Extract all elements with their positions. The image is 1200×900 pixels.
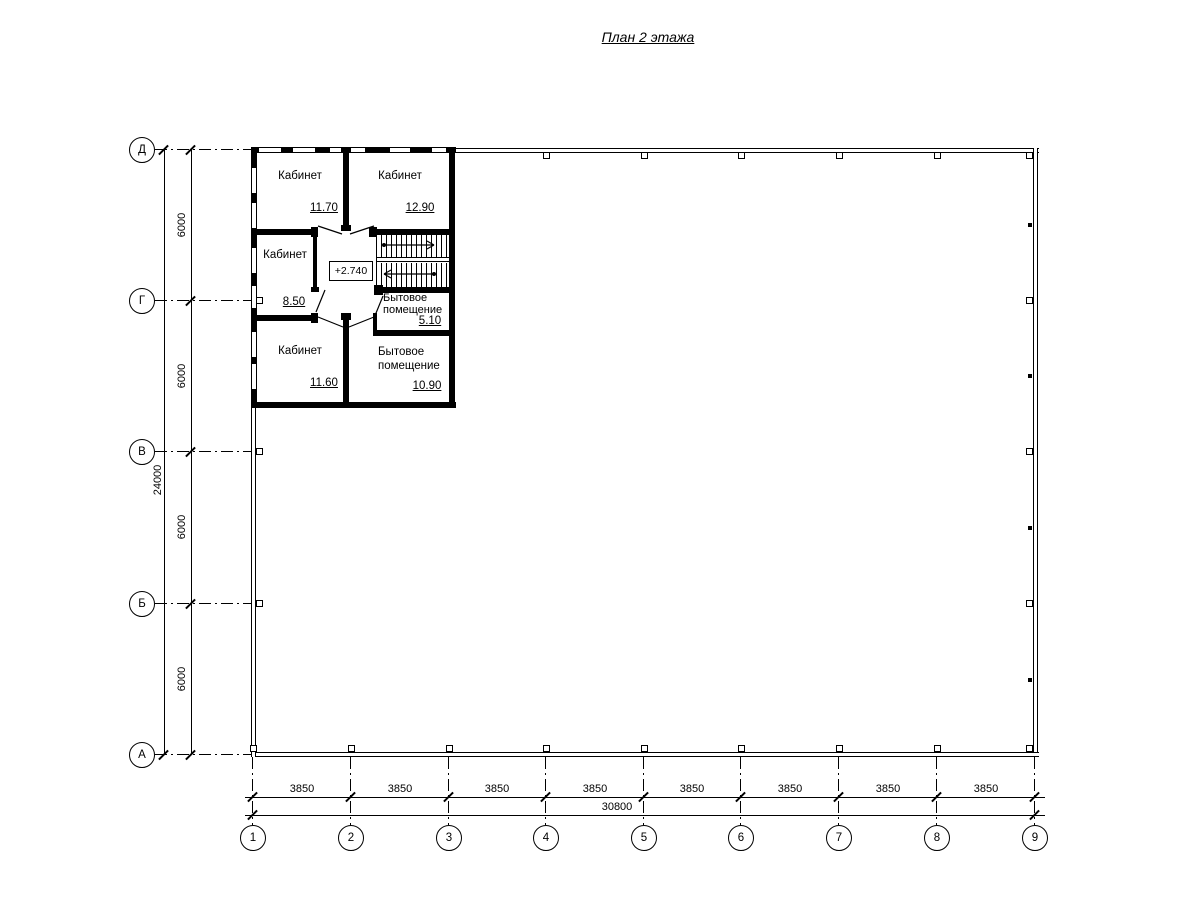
column-mark bbox=[641, 152, 648, 159]
door-leaf bbox=[318, 317, 343, 327]
room-name: Кабинет bbox=[378, 170, 422, 182]
column-mark-small bbox=[1028, 223, 1032, 227]
room-name: Бытовое помещение bbox=[383, 292, 449, 316]
column-mark bbox=[1026, 600, 1033, 607]
grid-bubble-label: Д bbox=[138, 144, 146, 156]
stair-arrow-start-dot bbox=[432, 272, 436, 276]
column-mark bbox=[256, 600, 263, 607]
grid-bubble-label: А bbox=[138, 749, 146, 761]
dim-line-horizontal-segments bbox=[245, 797, 1045, 798]
grid-bubble-row-a: А bbox=[129, 742, 155, 768]
door-leaf bbox=[316, 290, 325, 312]
dim-value-total: 30800 bbox=[577, 801, 657, 813]
room-area: 12.90 bbox=[406, 202, 435, 214]
column-mark-small bbox=[1028, 526, 1032, 530]
column-mark bbox=[1026, 448, 1033, 455]
dim-value: 6000 bbox=[176, 205, 188, 245]
grid-bubble-col-3: 3 bbox=[436, 825, 462, 851]
column-mark bbox=[348, 745, 355, 752]
grid-bubble-col-4: 4 bbox=[533, 825, 559, 851]
column-mark bbox=[934, 152, 941, 159]
grid-bubble-label: 1 bbox=[250, 832, 256, 844]
column-mark bbox=[738, 152, 745, 159]
dim-line-horizontal-total bbox=[245, 815, 1045, 816]
grid-bubble-label: 3 bbox=[446, 832, 452, 844]
column-mark bbox=[1026, 297, 1033, 304]
grid-bubble-label: 7 bbox=[836, 832, 842, 844]
grid-bubble-row-d: Д bbox=[129, 137, 155, 163]
grid-bubble-col-9: 9 bbox=[1022, 825, 1048, 851]
room-name: Бытовое помещение bbox=[378, 345, 450, 373]
dim-value: 3850 bbox=[662, 783, 722, 795]
grid-bubble-label: 5 bbox=[641, 832, 647, 844]
column-mark bbox=[543, 152, 550, 159]
column-mark bbox=[836, 152, 843, 159]
grid-bubble-label: 8 bbox=[934, 832, 940, 844]
door-leaf bbox=[349, 317, 374, 327]
dim-value: 6000 bbox=[176, 356, 188, 396]
grid-bubble-col-7: 7 bbox=[826, 825, 852, 851]
column-mark bbox=[256, 297, 263, 304]
dim-value: 3850 bbox=[272, 783, 332, 795]
grid-bubble-row-v: В bbox=[129, 439, 155, 465]
room-area: 10.90 bbox=[413, 380, 442, 392]
dim-line-vertical-total bbox=[164, 150, 165, 755]
dim-value: 3850 bbox=[370, 783, 430, 795]
room-area: 8.50 bbox=[283, 296, 305, 308]
doors-and-stair-arrows-overlay bbox=[0, 0, 1200, 900]
dim-value: 3850 bbox=[858, 783, 918, 795]
dim-value: 6000 bbox=[176, 659, 188, 699]
door-leaf bbox=[374, 296, 383, 318]
grid-bubble-label: 9 bbox=[1032, 832, 1038, 844]
column-mark bbox=[738, 745, 745, 752]
grid-bubble-col-5: 5 bbox=[631, 825, 657, 851]
grid-bubble-label: В bbox=[138, 446, 146, 458]
column-mark bbox=[446, 745, 453, 752]
column-mark bbox=[641, 745, 648, 752]
column-mark bbox=[836, 745, 843, 752]
grid-bubble-col-2: 2 bbox=[338, 825, 364, 851]
dim-value: 3850 bbox=[467, 783, 527, 795]
grid-bubble-row-b: Б bbox=[129, 591, 155, 617]
column-mark-small bbox=[1028, 678, 1032, 682]
grid-bubble-label: 6 bbox=[738, 832, 744, 844]
column-mark bbox=[1026, 152, 1033, 159]
column-mark bbox=[1026, 745, 1033, 752]
room-name: Кабинет bbox=[278, 170, 322, 182]
column-mark bbox=[256, 448, 263, 455]
column-mark-small bbox=[1028, 374, 1032, 378]
grid-bubble-col-8: 8 bbox=[924, 825, 950, 851]
door-leaf bbox=[318, 226, 342, 234]
dim-value-total: 24000 bbox=[152, 455, 164, 505]
grid-bubble-row-g: Г bbox=[129, 288, 155, 314]
grid-bubble-label: Г bbox=[139, 295, 145, 307]
room-name: Кабинет bbox=[278, 345, 322, 357]
room-name: Кабинет bbox=[263, 249, 307, 261]
grid-bubble-label: 2 bbox=[348, 832, 354, 844]
grid-bubble-label: Б bbox=[138, 598, 146, 610]
floor-plan-canvas: План 2 этажа bbox=[0, 0, 1200, 900]
room-area: 5.10 bbox=[419, 315, 441, 327]
dim-value: 3850 bbox=[565, 783, 625, 795]
dim-value: 3850 bbox=[760, 783, 820, 795]
room-area: 11.70 bbox=[310, 202, 338, 214]
grid-bubble-col-1: 1 bbox=[240, 825, 266, 851]
column-mark bbox=[250, 745, 257, 752]
column-mark bbox=[934, 745, 941, 752]
grid-bubble-label: 4 bbox=[543, 832, 549, 844]
stair-arrow-start-dot bbox=[382, 243, 386, 247]
dim-value: 3850 bbox=[956, 783, 1016, 795]
column-mark bbox=[543, 745, 550, 752]
room-area: 11.60 bbox=[310, 377, 338, 389]
door-leaf bbox=[350, 226, 374, 234]
grid-bubble-col-6: 6 bbox=[728, 825, 754, 851]
dim-value: 6000 bbox=[176, 507, 188, 547]
